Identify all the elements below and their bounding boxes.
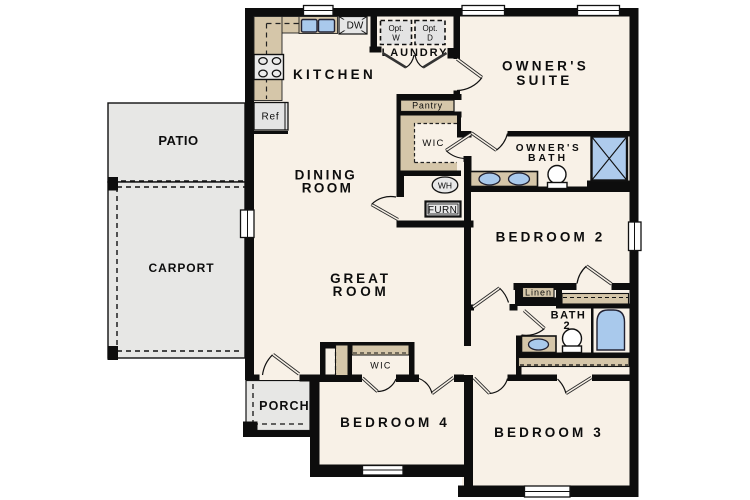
svg-text:ROOM: ROOM	[302, 181, 354, 196]
svg-text:BEDROOM 4: BEDROOM 4	[340, 415, 450, 430]
svg-text:Opt.: Opt.	[388, 24, 403, 33]
svg-text:PATIO: PATIO	[158, 133, 198, 148]
svg-text:FURN: FURN	[428, 205, 457, 216]
svg-text:Opt.: Opt.	[422, 24, 437, 33]
svg-text:KITCHEN: KITCHEN	[293, 67, 376, 82]
svg-text:ROOM: ROOM	[333, 284, 390, 299]
svg-text:OWNER'S: OWNER'S	[502, 59, 589, 74]
svg-text:Pantry: Pantry	[412, 101, 443, 111]
svg-text:WH: WH	[438, 181, 452, 191]
svg-text:DW: DW	[347, 21, 364, 32]
svg-text:BEDROOM 2: BEDROOM 2	[496, 230, 606, 245]
svg-text:BEDROOM 3: BEDROOM 3	[494, 425, 604, 440]
svg-text:Linen: Linen	[525, 288, 552, 298]
svg-text:WIC: WIC	[422, 138, 444, 149]
svg-text:2: 2	[563, 320, 569, 332]
svg-text:BATH: BATH	[528, 152, 568, 164]
svg-text:Ref: Ref	[262, 112, 280, 123]
svg-text:PORCH: PORCH	[259, 399, 310, 413]
svg-text:WIC: WIC	[370, 361, 391, 371]
svg-text:W: W	[392, 34, 400, 43]
svg-text:CARPORT: CARPORT	[149, 261, 215, 275]
svg-text:SUITE: SUITE	[516, 73, 572, 88]
svg-text:D: D	[427, 34, 433, 43]
